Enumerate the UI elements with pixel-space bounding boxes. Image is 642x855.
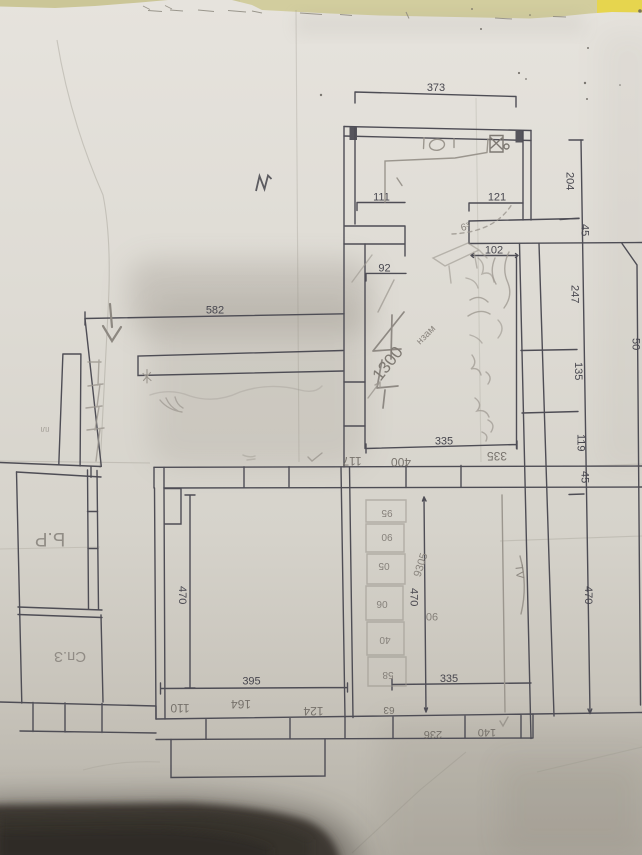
svg-text:40: 40 — [379, 634, 391, 645]
svg-text:111: 111 — [373, 192, 390, 204]
svg-text:90: 90 — [381, 531, 393, 542]
svg-text:121: 121 — [488, 192, 506, 204]
svg-text:90: 90 — [426, 610, 438, 622]
svg-text:135: 135 — [572, 362, 584, 380]
svg-text:470: 470 — [582, 586, 594, 604]
svg-text:164: 164 — [231, 697, 251, 711]
svg-text:335: 335 — [487, 449, 507, 463]
svg-text:140: 140 — [478, 726, 496, 738]
svg-text:335: 335 — [435, 436, 453, 448]
svg-text:95: 95 — [381, 507, 393, 518]
svg-text:110: 110 — [170, 701, 189, 715]
svg-text:05: 05 — [378, 560, 390, 571]
svg-text:119: 119 — [575, 434, 587, 452]
svg-text:470: 470 — [408, 588, 420, 606]
svg-text:236: 236 — [424, 728, 442, 740]
svg-text:582: 582 — [206, 305, 224, 317]
svg-text:335: 335 — [440, 673, 458, 685]
svg-text:63: 63 — [383, 704, 395, 715]
svg-text:373: 373 — [427, 82, 445, 94]
svg-text:45: 45 — [579, 224, 591, 236]
svg-text:пл: пл — [40, 425, 49, 434]
svg-text:45: 45 — [579, 471, 591, 483]
svg-text:92: 92 — [378, 263, 390, 275]
svg-text:400: 400 — [391, 455, 411, 469]
svg-text:102: 102 — [485, 245, 503, 257]
svg-text:50: 50 — [630, 338, 642, 350]
svg-text:58: 58 — [382, 669, 394, 680]
svg-text:247: 247 — [569, 285, 581, 303]
svg-text:TV: TV — [512, 564, 525, 580]
svg-text:117: 117 — [342, 454, 361, 468]
svg-text:204: 204 — [564, 172, 576, 190]
svg-text:06: 06 — [376, 598, 388, 609]
svg-text:395: 395 — [242, 676, 260, 688]
svg-text:124: 124 — [303, 704, 323, 718]
svg-text:Сп.З: Сп.З — [54, 648, 86, 665]
svg-text:Ь.Р: Ь.Р — [35, 528, 65, 549]
svg-text:470: 470 — [176, 586, 188, 604]
